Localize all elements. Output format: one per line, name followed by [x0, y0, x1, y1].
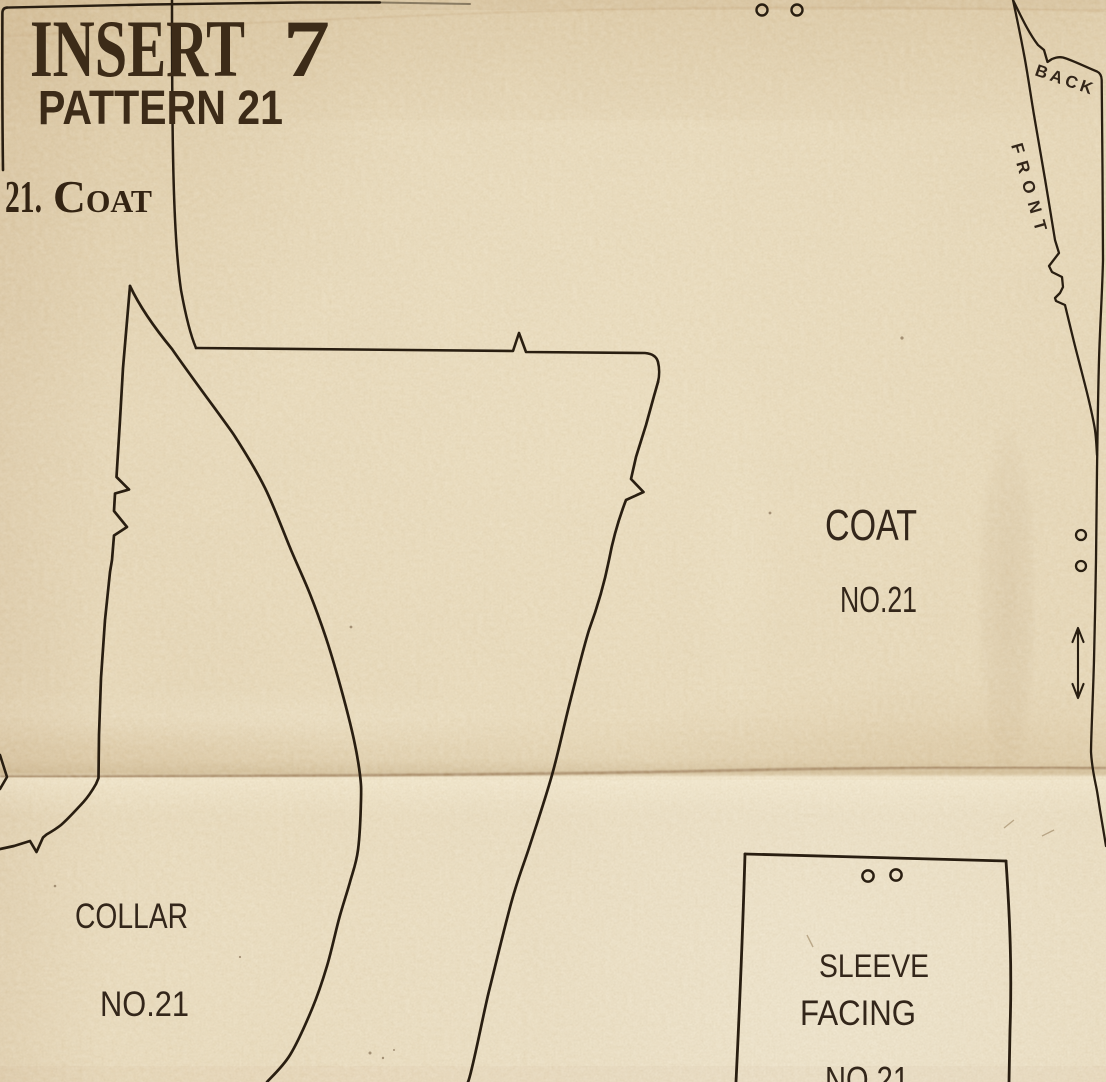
svg-text:21.: 21. [5, 172, 42, 222]
svg-text:NO.21: NO.21 [825, 1059, 909, 1082]
svg-text:SLEEVE: SLEEVE [819, 948, 929, 984]
svg-text:COLLAR: COLLAR [75, 897, 188, 936]
svg-text:NO.21: NO.21 [840, 579, 917, 620]
svg-text:COAT: COAT [825, 501, 917, 550]
svg-text:INSERT: INSERT [30, 3, 245, 94]
svg-text:7: 7 [283, 3, 330, 94]
svg-text:NO.21: NO.21 [100, 985, 189, 1024]
svg-text:FACING: FACING [800, 994, 916, 1033]
svg-text:Coat: Coat [53, 171, 152, 222]
svg-text:PATTERN 21: PATTERN 21 [38, 82, 283, 135]
